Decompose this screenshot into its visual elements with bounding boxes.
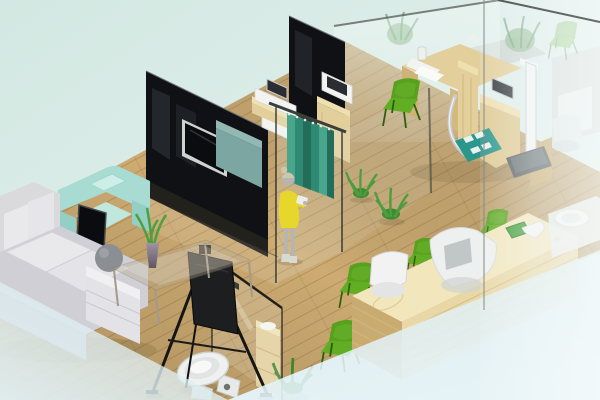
wall-b-reflection [295, 30, 312, 96]
curtain-fold-5 [319, 125, 327, 196]
gray-dome-highlight [99, 248, 109, 258]
curtain-fold-2 [295, 116, 303, 187]
person-leg-right [291, 228, 295, 256]
person-leg-left [284, 228, 288, 254]
staff-chair-2-seat [441, 277, 483, 293]
curtain-fold-3 [303, 119, 311, 190]
curtain-fold-6 [327, 128, 334, 199]
staff-chair-1-seat [371, 282, 405, 298]
person-boot-left [281, 254, 290, 262]
exam-device-cylinder [418, 47, 426, 60]
plant-2-shadow [379, 219, 405, 226]
toilet-flush-button [224, 384, 230, 390]
isometric-room-render [0, 0, 600, 400]
staff-chair-1 [370, 252, 408, 298]
person-hair-bun [281, 167, 287, 173]
wall-a-reflection-1 [152, 88, 170, 160]
render-canvas [0, 0, 600, 400]
person-hand [303, 201, 307, 205]
frosted-glass-wall [480, 0, 600, 400]
frost-right-fill [480, 0, 600, 400]
person-boot-right [289, 256, 297, 263]
curtain-fold-4 [311, 122, 319, 193]
